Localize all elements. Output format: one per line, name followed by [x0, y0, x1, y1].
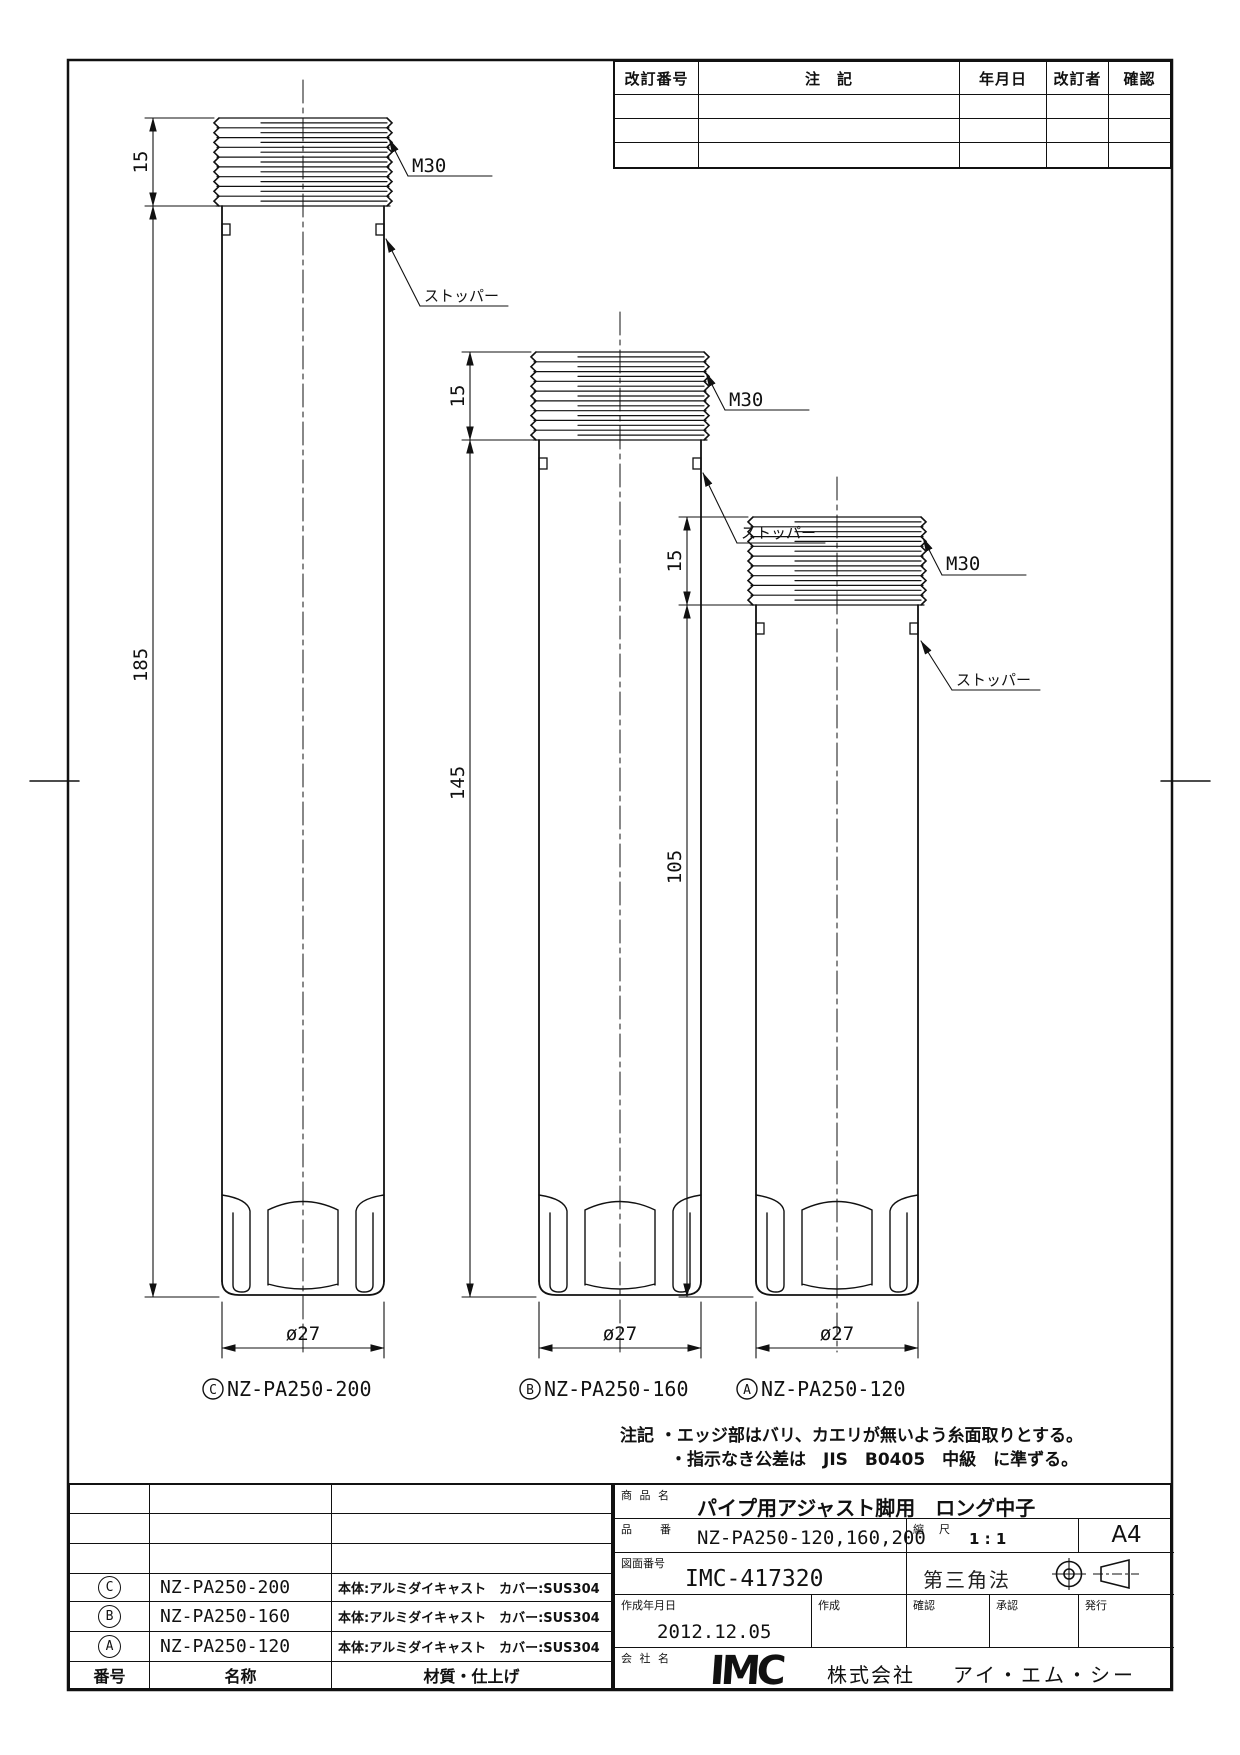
thread-spec-label: M30	[946, 553, 980, 575]
projection-method: 第三角法	[923, 1564, 1011, 1593]
company-logo: IMC	[708, 1648, 783, 1694]
scale-value: 1 : 1	[969, 1530, 1006, 1548]
svg-text:B: B	[526, 1383, 534, 1398]
checked-label: 確認	[913, 1597, 935, 1613]
dim-thread-length: 15	[664, 550, 686, 573]
svg-text:A: A	[743, 1383, 751, 1398]
parts-footer-name: 名称	[150, 1662, 332, 1688]
dim-body-length: 145	[447, 766, 469, 800]
part-label-a: A NZ-PA250-120	[737, 1377, 906, 1401]
revision-cell-empty	[960, 143, 1047, 167]
part-letter-badge: B	[98, 1605, 121, 1628]
revision-table: 改訂番号 注 記 年月日 改訂者 確認	[613, 60, 1172, 169]
revision-cell-empty	[1047, 95, 1109, 119]
revision-cell-empty	[1047, 119, 1109, 143]
title-block-size-cell: A4	[1079, 1519, 1174, 1553]
parts-cell-empty	[150, 1485, 332, 1514]
revision-cell-empty	[615, 143, 699, 167]
parts-cell-empty	[150, 1544, 332, 1574]
parts-cell-empty	[332, 1485, 611, 1514]
title-block-approved-cell: 承認	[990, 1595, 1079, 1648]
third-angle-projection-icon	[1049, 1557, 1169, 1591]
revision-cell-empty	[960, 95, 1047, 119]
title-block-created-cell: 作成	[812, 1595, 907, 1648]
svg-text:NZ-PA250-120: NZ-PA250-120	[761, 1377, 906, 1401]
paper-size: A4	[1111, 1522, 1141, 1548]
revision-cell-empty	[1109, 95, 1170, 119]
parts-footer-material: 材質・仕上げ	[332, 1662, 611, 1688]
dim-thread-length: 15	[130, 151, 152, 174]
parts-cell-empty	[150, 1514, 332, 1544]
svg-text:NZ-PA250-160: NZ-PA250-160	[544, 1377, 689, 1401]
date-label: 作成年月日	[621, 1597, 676, 1613]
part-label-b: B NZ-PA250-160	[520, 1377, 689, 1401]
revision-cell-empty	[615, 95, 699, 119]
title-block-checked-cell: 確認	[907, 1595, 990, 1648]
svg-text:NZ-PA250-200: NZ-PA250-200	[227, 1377, 372, 1401]
revision-cell-empty	[1109, 143, 1170, 167]
stopper-square	[693, 458, 701, 469]
title-block-date-cell: 作成年月日 2012.12.05	[615, 1595, 812, 1648]
part-no-value: NZ-PA250-120,160,200	[697, 1527, 926, 1549]
notes-title: 注記	[620, 1426, 654, 1446]
part-letter-badge: A	[98, 1635, 121, 1658]
revision-col-header: 改訂番号	[615, 62, 699, 95]
date-value: 2012.12.05	[657, 1621, 771, 1643]
revision-cell-empty	[1047, 143, 1109, 167]
parts-row-no: A	[70, 1632, 150, 1662]
dim-diameter: ø27	[820, 1323, 854, 1345]
title-block-product-row: 商 品 名 パイプ用アジャスト脚用 ロング中子	[615, 1485, 1171, 1519]
parts-cell-empty	[332, 1514, 611, 1544]
revision-col-header: 確認	[1109, 62, 1170, 95]
revision-col-header: 改訂者	[1047, 62, 1109, 95]
notes-line-2: ・指示なき公差は JIS B0405 中級 に準ずる。	[620, 1448, 1120, 1472]
title-block-partno-cell: 品 番 NZ-PA250-120,160,200	[615, 1519, 907, 1553]
company-label: 会 社 名	[621, 1650, 671, 1666]
revision-col-header: 年月日	[960, 62, 1047, 95]
cylinder-view-c: 15 185 ø27 M30 ストッパー C NZ-PA250-200	[130, 80, 508, 1401]
stopper-label: ストッパー	[424, 287, 499, 305]
product-label: 商 品 名	[621, 1487, 671, 1503]
stopper-square	[756, 623, 764, 634]
parts-cell-empty	[70, 1514, 150, 1544]
issued-label: 発行	[1085, 1597, 1107, 1613]
thread-spec-label: M30	[729, 389, 763, 411]
parts-row-material: 本体:アルミダイキャスト カバー:SUS304	[332, 1632, 611, 1662]
cylinder-view-a: 15 105 ø27 M30 ストッパー A NZ-PA250-120	[664, 477, 1040, 1401]
drawing-no-value: IMC-417320	[685, 1566, 823, 1592]
stopper-label: ストッパー	[956, 671, 1031, 689]
scale-label: 縮 尺	[913, 1521, 952, 1537]
title-block-scale-cell: 縮 尺 1 : 1	[907, 1519, 1079, 1553]
parts-cell-empty	[70, 1485, 150, 1514]
part-letter-badge: C	[98, 1576, 121, 1599]
title-block-dwgno-cell: 図面番号 IMC-417320	[615, 1553, 907, 1595]
cylinder-view-b: 15 145 ø27 M30 ストッパー B NZ-PA250-160	[447, 312, 825, 1401]
dim-diameter: ø27	[286, 1323, 320, 1345]
parts-footer-no: 番号	[70, 1662, 150, 1688]
parts-row-name: NZ-PA250-120	[150, 1632, 332, 1662]
parts-row-no: C	[70, 1574, 150, 1602]
svg-text:C: C	[209, 1383, 217, 1398]
revision-cell-empty	[699, 119, 960, 143]
parts-table: C NZ-PA250-200 本体:アルミダイキャスト カバー:SUS304 B…	[68, 1483, 613, 1690]
title-block-projection-cell: 第三角法	[907, 1553, 1174, 1595]
company-name: アイ・エム・シー	[953, 1659, 1136, 1688]
parts-row-material: 本体:アルミダイキャスト カバー:SUS304	[332, 1574, 611, 1602]
part-no-label: 品 番	[621, 1521, 673, 1537]
dim-thread-length: 15	[447, 385, 469, 408]
stopper-square	[539, 458, 547, 469]
product-name: パイプ用アジャスト脚用 ロング中子	[697, 1492, 1035, 1521]
part-label-c: C NZ-PA250-200	[203, 1377, 372, 1401]
stopper-square	[222, 224, 230, 235]
title-block-issued-cell: 発行	[1079, 1595, 1174, 1648]
revision-cell-empty	[699, 95, 960, 119]
drawing-notes: 注記 ・エッジ部はバリ、カエリが無いよう糸面取りとする。 ・指示なき公差は JI…	[620, 1424, 1120, 1472]
parts-row-name: NZ-PA250-200	[150, 1574, 332, 1602]
title-block: 商 品 名 パイプ用アジャスト脚用 ロング中子 品 番 NZ-PA250-120…	[613, 1483, 1172, 1690]
revision-cell-empty	[1109, 119, 1170, 143]
title-block-company-row: 会 社 名 IMC 株式会社 アイ・エム・シー	[615, 1648, 1171, 1689]
stopper-square	[376, 224, 384, 235]
drawing-no-label: 図面番号	[621, 1555, 665, 1571]
notes-line-1: ・エッジ部はバリ、カエリが無いよう糸面取りとする。	[660, 1426, 1083, 1446]
created-label: 作成	[818, 1597, 840, 1613]
dim-diameter: ø27	[603, 1323, 637, 1345]
approved-label: 承認	[996, 1597, 1018, 1613]
thread-spec-label: M30	[412, 155, 446, 177]
stopper-square	[910, 623, 918, 634]
parts-row-material: 本体:アルミダイキャスト カバー:SUS304	[332, 1602, 611, 1632]
dim-body-length: 185	[130, 648, 152, 682]
revision-cell-empty	[960, 119, 1047, 143]
revision-cell-empty	[699, 143, 960, 167]
revision-cell-empty	[615, 119, 699, 143]
parts-cell-empty	[70, 1544, 150, 1574]
dim-body-length: 105	[664, 850, 686, 884]
company-type: 株式会社	[827, 1659, 915, 1688]
parts-row-name: NZ-PA250-160	[150, 1602, 332, 1632]
parts-row-no: B	[70, 1602, 150, 1632]
revision-col-header: 注 記	[699, 62, 960, 95]
parts-cell-empty	[332, 1544, 611, 1574]
